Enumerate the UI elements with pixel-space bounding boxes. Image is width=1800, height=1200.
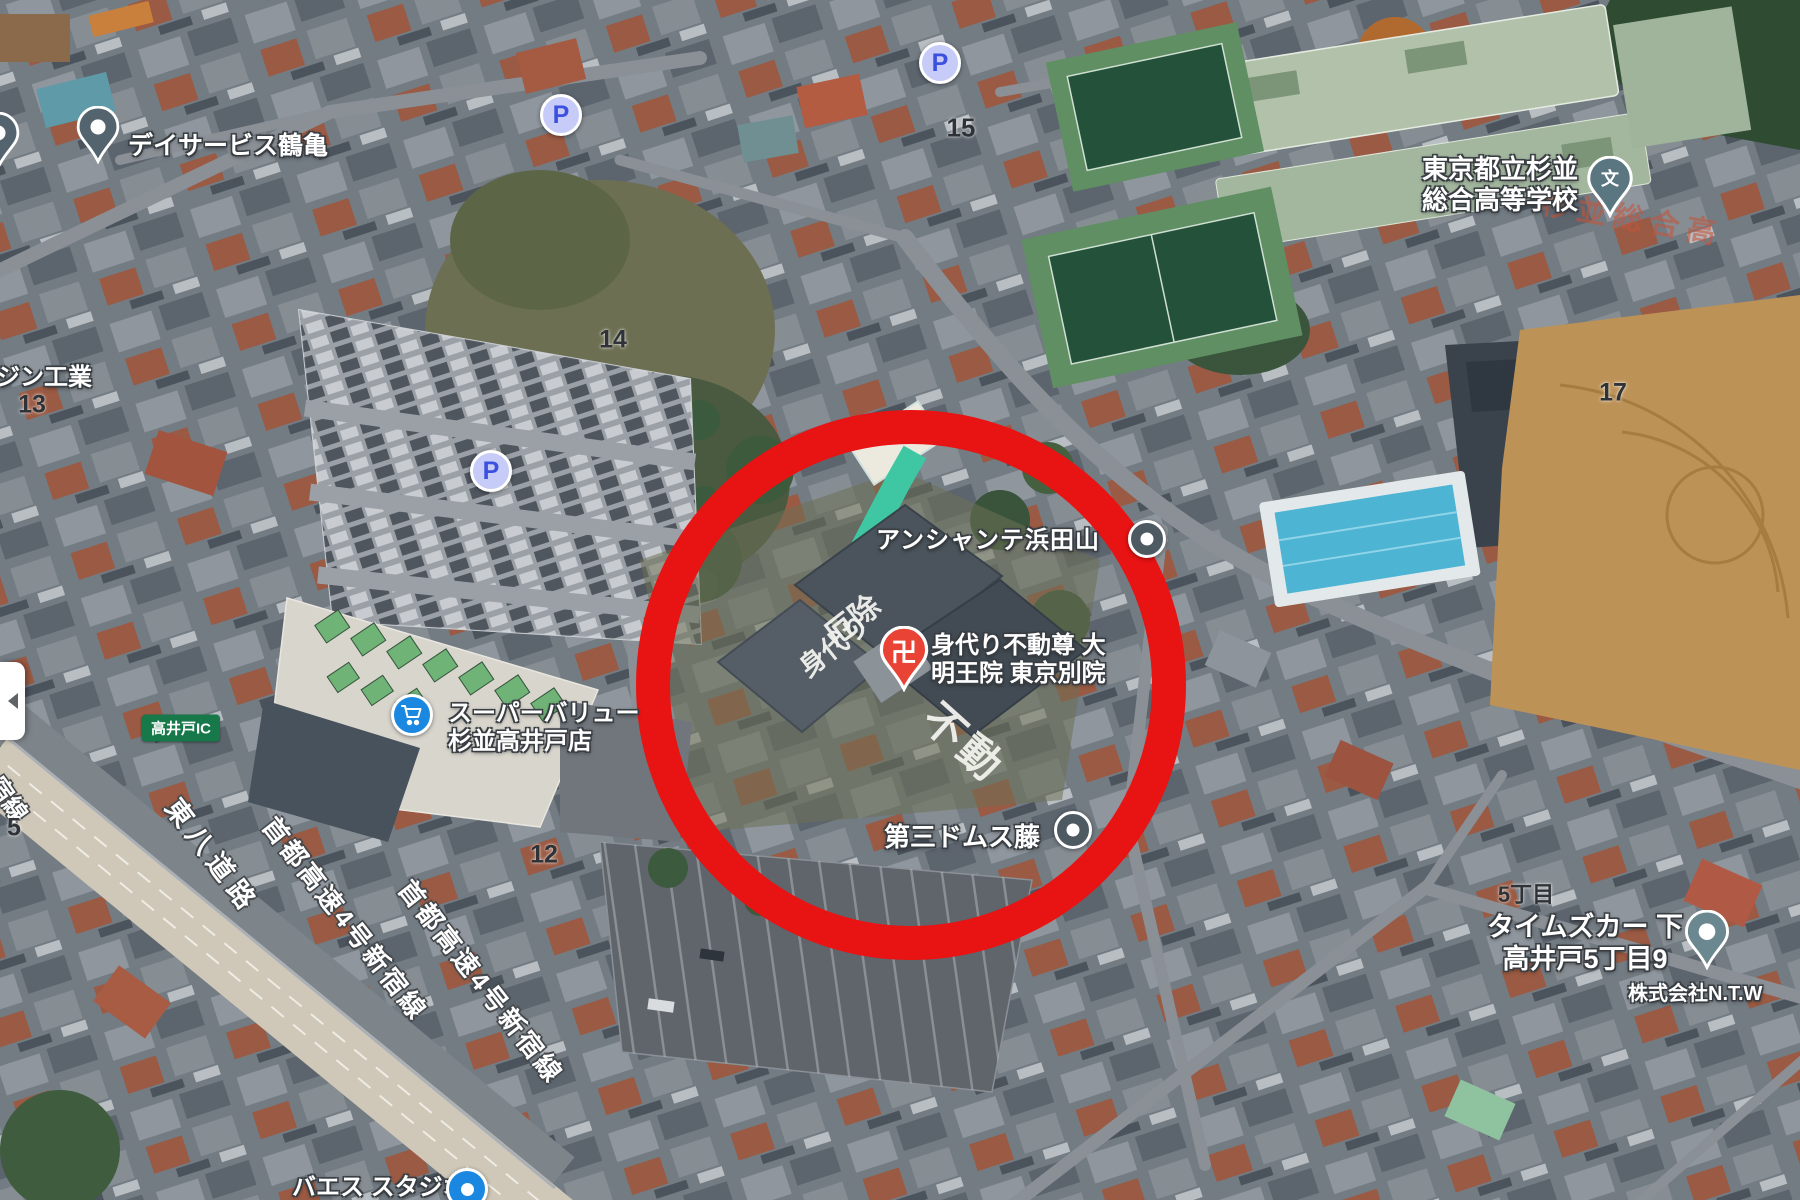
parking-icon-1[interactable]: P — [540, 94, 582, 136]
temple-pin-icon[interactable]: 卍 — [878, 626, 930, 697]
school-pin-icon[interactable]: 文 — [1586, 156, 1634, 223]
temple-label-line1: 身代り不動尊 大 — [931, 632, 1106, 660]
poi-label-timescar[interactable]: タイムズカー 下 高井戸5丁目9 — [1470, 912, 1700, 976]
poi-label-domus[interactable]: 第三ドムス藤 — [884, 822, 1040, 853]
block-number-17: 17 — [1599, 379, 1627, 408]
poi-dot — [461, 1183, 474, 1196]
parking-icon-3[interactable]: P — [470, 450, 512, 492]
block-number-5: 5 — [7, 814, 21, 843]
side-panel-collapse-tab[interactable] — [0, 662, 25, 740]
poi-label-studio[interactable]: バエス スタジオ — [292, 1174, 467, 1200]
parking-glyph: P — [553, 101, 570, 130]
temple-pin-glyph: 卍 — [891, 633, 917, 670]
timescar-label-line2: 高井戸5丁目9 — [1470, 944, 1700, 976]
timescar-pin-icon[interactable] — [1684, 910, 1730, 975]
poi-label-school[interactable]: 東京都立杉並 総合高等学校 — [1422, 154, 1578, 215]
poi-label-daycare[interactable]: デイサービス鶴亀 — [128, 132, 328, 162]
parking-glyph: P — [932, 49, 949, 78]
poi-label-anchante[interactable]: アンシャンテ浜田山 — [876, 527, 1100, 555]
edge-pin-icon[interactable] — [0, 112, 20, 175]
daycare-pin-icon[interactable] — [76, 106, 120, 169]
anchante-dot-pin-icon[interactable] — [1128, 520, 1166, 558]
block-number-12: 12 — [530, 841, 558, 870]
supermarket-label-line1: スーパーバリュー — [448, 700, 640, 728]
parking-glyph: P — [483, 457, 500, 486]
school-pin-glyph: 文 — [1601, 165, 1619, 191]
district-label-5chome: 5丁目 — [1498, 877, 1554, 909]
parking-icon-2[interactable]: P — [919, 42, 961, 84]
domus-dot-pin-icon[interactable] — [1054, 811, 1092, 849]
school-label-line2: 総合高等学校 — [1422, 185, 1578, 216]
block-number-14: 14 — [599, 326, 627, 355]
shopping-cart-icon[interactable] — [391, 694, 433, 736]
interchange-badge-takaido-ic: 高井戸IC — [142, 715, 220, 742]
poi-label-ntw[interactable]: 株式会社N.T.W — [1628, 983, 1762, 1007]
satellite-map-view: 厄除 身代り 不動 杉並総合高 東八道路 首都高速4号新宿線 首都高速4号新宿線… — [0, 0, 1800, 1200]
poi-label-temple[interactable]: 身代り不動尊 大 明王院 東京別院 — [931, 632, 1106, 689]
poi-label-engineering[interactable]: ジン工業 — [0, 364, 92, 392]
chevron-left-icon — [8, 693, 18, 709]
school-label-line1: 東京都立杉並 — [1422, 154, 1578, 185]
supermarket-label-line2: 杉並高井戸店 — [448, 728, 640, 756]
poi-label-supermarket[interactable]: スーパーバリュー 杉並高井戸店 — [448, 700, 640, 757]
timescar-label-line1: タイムズカー 下 — [1470, 912, 1700, 944]
block-number-15: 15 — [947, 113, 976, 144]
temple-label-line2: 明王院 東京別院 — [931, 660, 1106, 688]
block-number-13: 13 — [18, 391, 46, 420]
